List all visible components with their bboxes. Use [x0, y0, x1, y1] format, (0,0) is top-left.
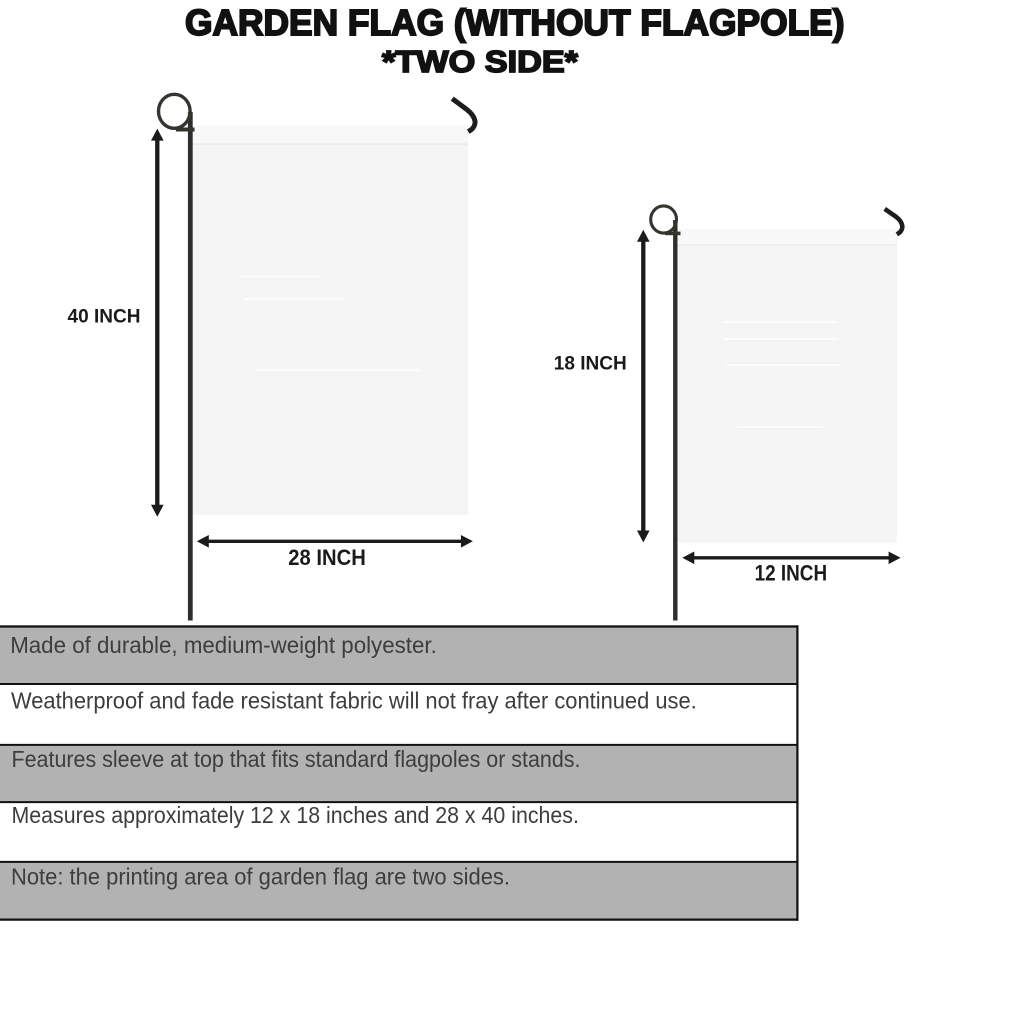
svg-text:18 INCH: 18 INCH	[554, 353, 627, 375]
svg-text:12 INCH: 12 INCH	[755, 560, 828, 585]
svg-text:40 INCH: 40 INCH	[68, 305, 141, 327]
svg-text:Measures approximately 12 x 18: Measures approximately 12 x 18 inches an…	[12, 802, 579, 828]
svg-text:Features sleeve at top that fi: Features sleeve at top that fits standar…	[12, 746, 581, 772]
svg-text:GARDEN FLAG (WITHOUT FLAGPOLE): GARDEN FLAG (WITHOUT FLAGPOLE)	[185, 2, 845, 43]
svg-text:*TWO SIDE*: *TWO SIDE*	[382, 44, 579, 79]
svg-text:Note: the printing area of gar: Note: the printing area of garden flag a…	[11, 864, 510, 890]
svg-text:28 INCH: 28 INCH	[288, 545, 366, 570]
svg-text:Weatherproof and fade resistan: Weatherproof and fade resistant fabric w…	[11, 688, 697, 714]
svg-text:Made of durable, medium-weight: Made of durable, medium-weight polyester…	[10, 632, 437, 658]
